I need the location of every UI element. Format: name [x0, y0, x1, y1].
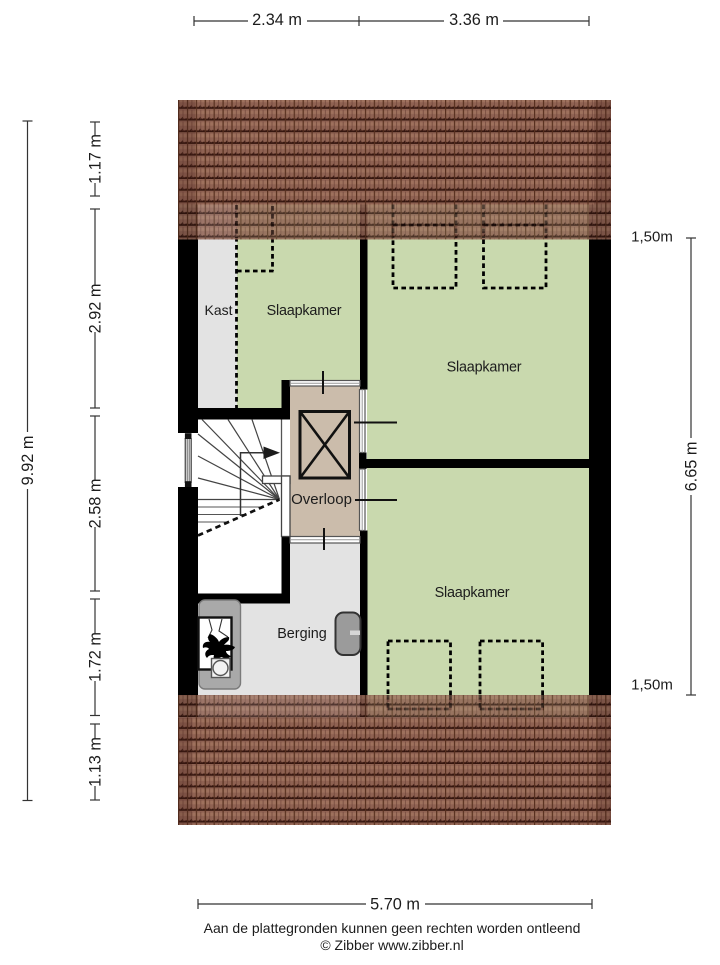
svg-text:Slaapkamer: Slaapkamer	[447, 359, 522, 375]
svg-text:1.13 m: 1.13 m	[87, 737, 105, 787]
svg-text:9.92 m: 9.92 m	[19, 436, 37, 486]
svg-text:1,50m: 1,50m	[631, 677, 673, 694]
svg-text:5.70 m: 5.70 m	[370, 896, 420, 914]
svg-text:2.58 m: 2.58 m	[87, 479, 105, 529]
svg-text:2.92 m: 2.92 m	[87, 284, 105, 334]
svg-text:Slaapkamer: Slaapkamer	[435, 585, 510, 601]
svg-text:Berging: Berging	[277, 626, 327, 642]
svg-text:1.17 m: 1.17 m	[87, 134, 105, 184]
svg-text:Aan de plattegronden kunnen ge: Aan de plattegronden kunnen geen rechten…	[204, 920, 581, 936]
svg-text:© Zibber www.zibber.nl: © Zibber www.zibber.nl	[320, 937, 463, 953]
svg-text:2.34 m: 2.34 m	[252, 11, 302, 29]
svg-text:1,50m: 1,50m	[631, 229, 673, 246]
svg-text:1.72 m: 1.72 m	[87, 632, 105, 682]
svg-text:Slaapkamer: Slaapkamer	[267, 303, 342, 319]
svg-text:3.36 m: 3.36 m	[449, 11, 499, 29]
svg-text:6.65 m: 6.65 m	[683, 442, 701, 492]
svg-text:Overloop: Overloop	[291, 491, 352, 508]
svg-text:Kast: Kast	[204, 302, 232, 318]
